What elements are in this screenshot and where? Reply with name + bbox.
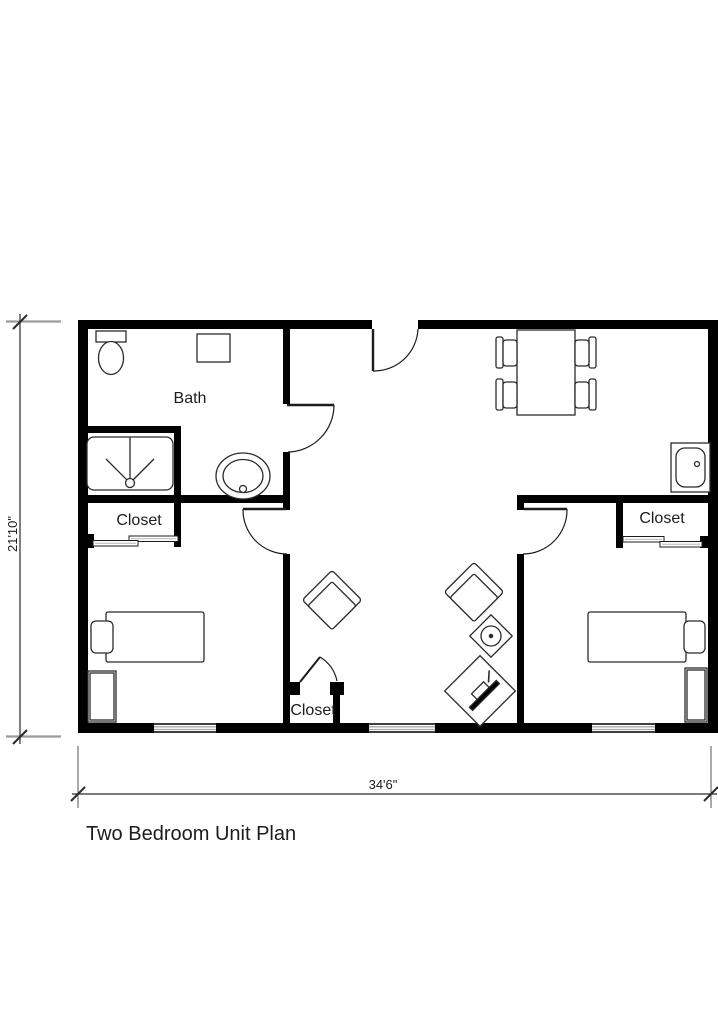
wall-segment	[330, 682, 344, 695]
lamp-table-icon	[470, 615, 512, 657]
wall-segment	[216, 723, 369, 733]
wall-segment	[78, 723, 154, 733]
height-dimension-label: 21'10"	[5, 516, 20, 552]
interior-walls	[88, 329, 718, 723]
closet-left-label: Closet	[116, 512, 162, 529]
wall-segment	[88, 426, 181, 433]
right-closet-sliding-doors	[623, 537, 702, 548]
toilet-icon	[96, 331, 126, 375]
armchair-icon	[444, 562, 503, 621]
wall-segment	[517, 495, 718, 503]
width-dimension-label: 34'6"	[369, 777, 398, 792]
dining-chair	[496, 379, 517, 410]
wall-segment	[290, 682, 300, 695]
floor-plan-canvas: 21'10" 34'6" Bath Closet Closet Closet T…	[0, 0, 718, 1015]
window-right-bedroom	[592, 723, 655, 733]
left-bedroom-door	[243, 509, 287, 554]
dining-chair	[496, 337, 517, 368]
wall-segment	[174, 426, 181, 547]
wall-segment	[78, 320, 372, 329]
wall-segment	[708, 320, 718, 733]
wall-segment	[88, 495, 290, 503]
kitchen-dining	[496, 330, 710, 492]
window-living	[369, 723, 435, 733]
bed-icon	[588, 612, 705, 662]
wall-segment	[283, 554, 290, 723]
bath-sink-icon	[216, 453, 270, 499]
dining-table	[517, 330, 575, 415]
wall-segment	[418, 320, 718, 329]
entry-door	[373, 329, 418, 371]
dresser	[88, 671, 116, 722]
tv-stand-icon	[445, 656, 516, 727]
wall-segment	[616, 503, 623, 548]
wall-segment	[655, 723, 718, 733]
closet-center-label: Closet	[290, 702, 336, 719]
right-bedroom-door	[523, 509, 567, 554]
dining-chair	[575, 379, 596, 410]
plan-title: Two Bedroom Unit Plan	[86, 823, 296, 845]
bath-door	[287, 405, 334, 452]
wall-segment	[78, 320, 88, 733]
dining-chair	[575, 337, 596, 368]
left-closet-sliding-doors	[93, 536, 178, 546]
bath-cabinet	[197, 334, 230, 362]
shower-icon	[87, 437, 173, 490]
dimension-height: 21'10"	[5, 314, 61, 744]
bedroom-furniture	[88, 612, 707, 722]
bath-label: Bath	[174, 390, 207, 407]
bed-icon	[91, 612, 204, 662]
closet-right-label: Closet	[639, 510, 685, 527]
dresser	[685, 668, 707, 722]
wall-segment	[283, 329, 290, 404]
floor-plan-svg: 21'10" 34'6" Bath Closet Closet Closet T…	[0, 0, 718, 1015]
wall-segment	[517, 503, 524, 510]
wall-segment	[517, 554, 524, 723]
wall-segment	[435, 723, 592, 733]
armchair-icon	[302, 570, 361, 629]
kitchen-sink-icon	[671, 443, 710, 492]
dimension-width: 34'6"	[71, 746, 718, 808]
window-left-bedroom	[154, 723, 216, 733]
center-closet-door	[300, 657, 337, 682]
